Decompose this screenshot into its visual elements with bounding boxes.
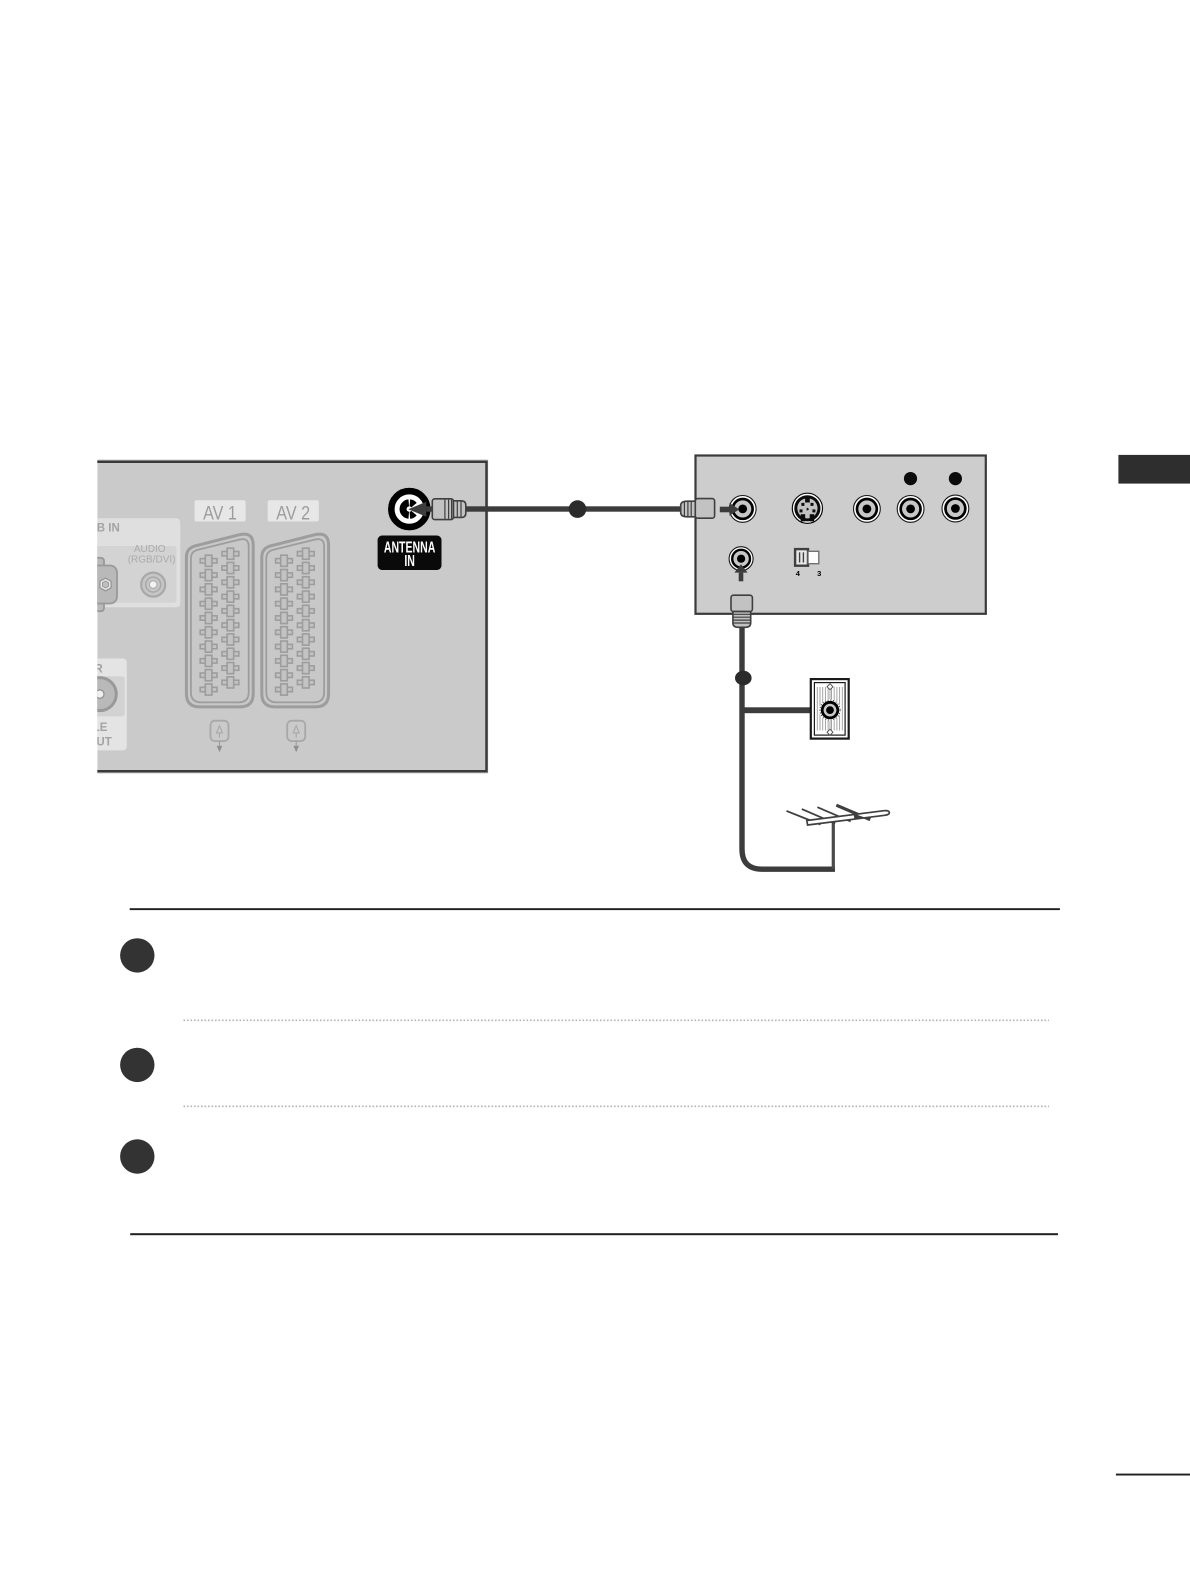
svg-text:3: 3 — [817, 569, 821, 578]
svg-text:AV 2: AV 2 — [276, 502, 310, 524]
svg-text:AUDIO: AUDIO — [134, 544, 166, 555]
svg-text:AV 1: AV 1 — [203, 502, 237, 524]
svg-text:B IN: B IN — [97, 523, 120, 535]
svg-text:UT: UT — [96, 737, 111, 749]
svg-text:(RGB/DVI): (RGB/DVI) — [128, 555, 176, 566]
svg-text:IN: IN — [404, 552, 415, 570]
